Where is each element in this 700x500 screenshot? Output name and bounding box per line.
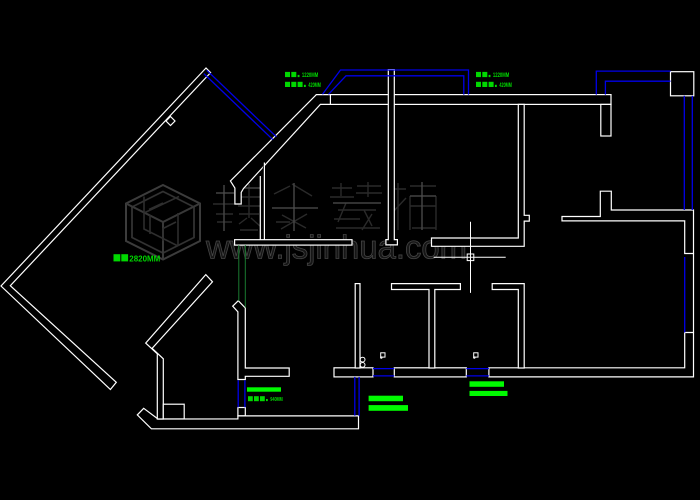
- svg-text:420MM: 420MM: [308, 82, 321, 89]
- svg-text:940MM: 940MM: [270, 397, 283, 403]
- svg-text:1220MM: 1220MM: [302, 72, 318, 79]
- svg-text:www.jsjinhua.com: www.jsjinhua.com: [205, 229, 467, 266]
- svg-text:1220MM: 1220MM: [493, 72, 509, 79]
- svg-text:420MM: 420MM: [499, 82, 512, 89]
- svg-text:2820MM: 2820MM: [129, 253, 160, 263]
